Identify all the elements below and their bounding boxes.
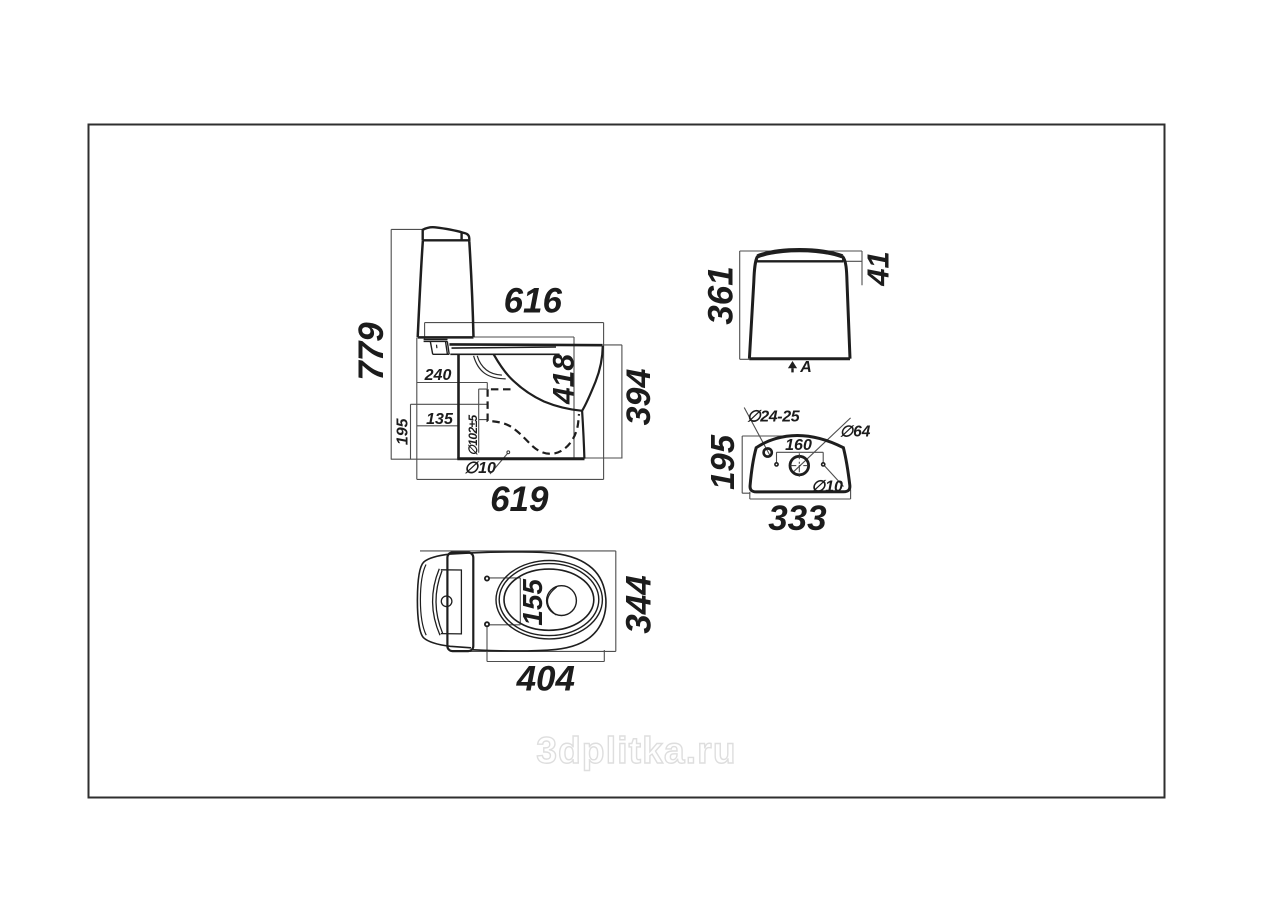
svg-text:155: 155 [517,579,548,626]
svg-text:∅102±5: ∅102±5 [466,415,480,456]
svg-text:240: 240 [424,367,452,384]
svg-text:A: A [799,359,812,376]
svg-text:195: 195 [395,417,412,445]
svg-text:616: 616 [504,282,563,321]
svg-text:∅64: ∅64 [840,423,871,440]
svg-text:394: 394 [620,369,658,426]
svg-text:3dplitka.ru: 3dplitka.ru [536,730,736,771]
svg-text:195: 195 [704,434,741,490]
svg-text:779: 779 [352,322,391,381]
svg-text:∅24-25: ∅24-25 [747,408,801,425]
svg-text:344: 344 [620,575,659,633]
svg-text:135: 135 [426,411,454,428]
svg-text:361: 361 [702,266,741,324]
svg-text:333: 333 [768,499,827,538]
svg-text:41: 41 [861,251,896,286]
svg-text:418: 418 [548,354,581,405]
svg-text:160: 160 [785,437,812,454]
svg-text:619: 619 [490,480,549,519]
svg-text:∅10: ∅10 [464,460,496,477]
svg-text:404: 404 [516,659,575,698]
svg-text:∅10: ∅10 [811,479,843,496]
